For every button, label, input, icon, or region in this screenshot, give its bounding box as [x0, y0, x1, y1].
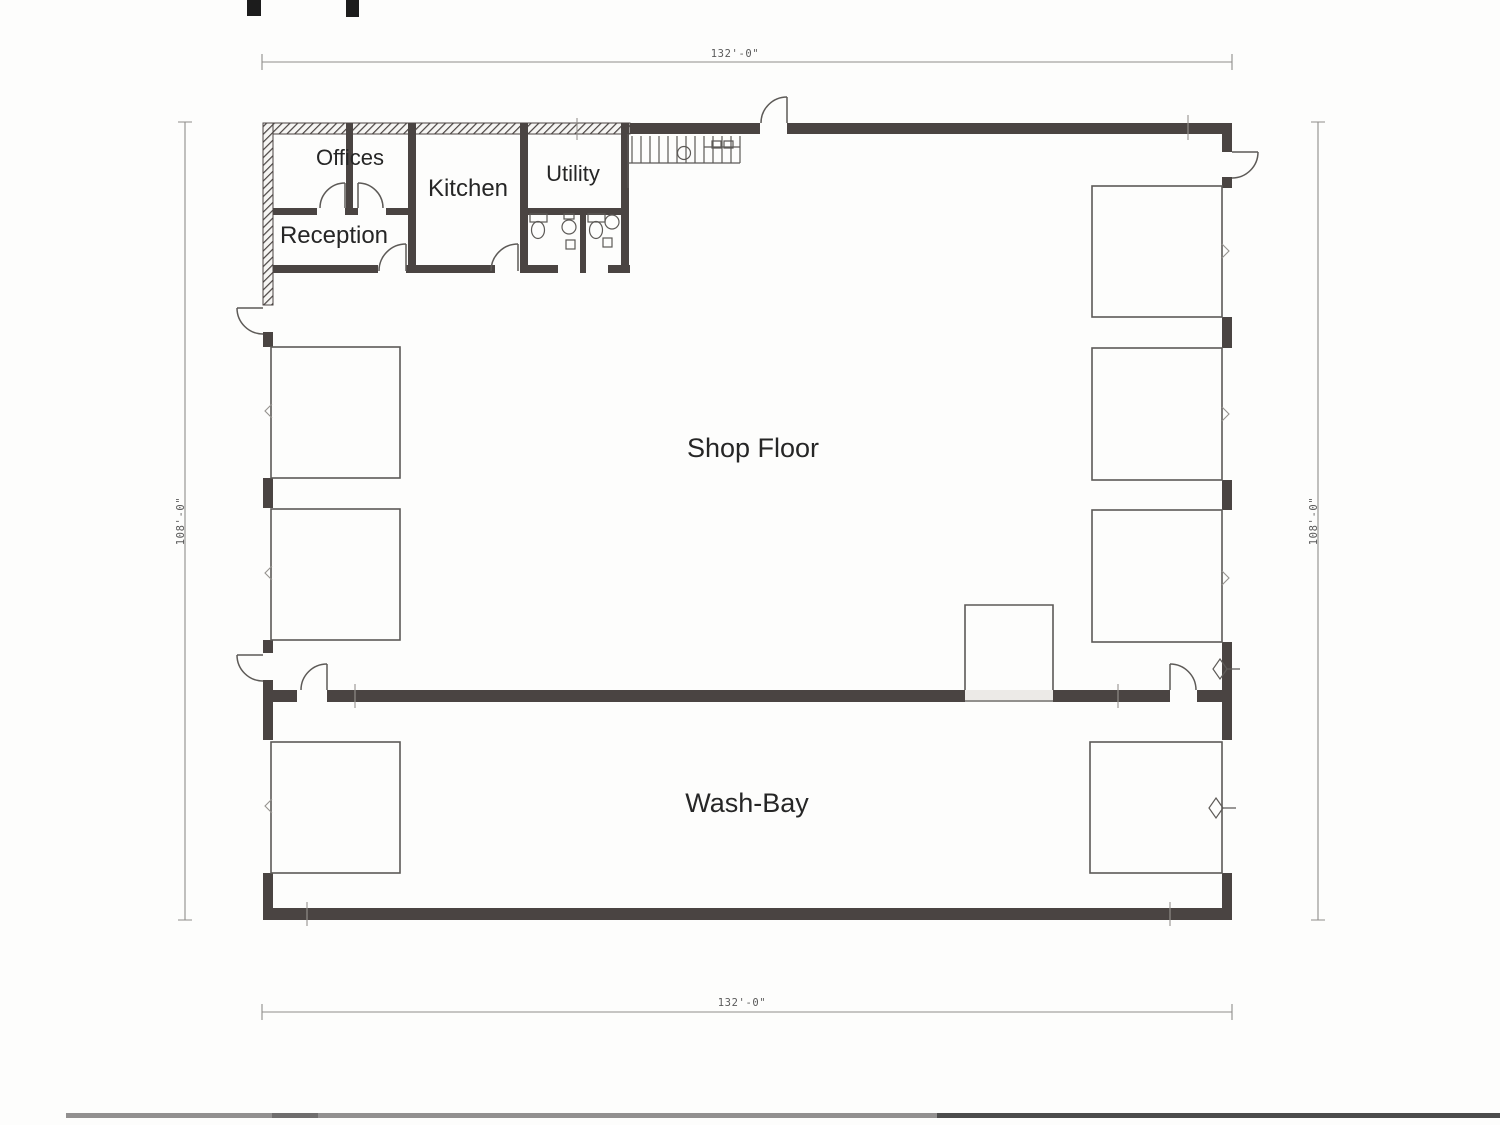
- stair-symbol-circle: [678, 147, 691, 160]
- overhead-door-bays: [271, 186, 1222, 873]
- dimension-bottom: 132'-0": [262, 997, 1232, 1020]
- floor-drain: [566, 240, 575, 249]
- right-wall: [1222, 480, 1232, 510]
- bay-left-2: [271, 509, 400, 640]
- floor-plan-drawing: 132'-0" 132'-0" 108'-0" 108'-0": [0, 0, 1500, 1125]
- dimension-top: 132'-0": [262, 48, 1232, 70]
- toilet: [588, 214, 605, 239]
- left-wall: [263, 332, 273, 347]
- office-right-door: [358, 183, 383, 208]
- left-wall: [263, 640, 273, 653]
- kitchen-east-wall: [520, 123, 528, 273]
- top-wall-exterior-door: [761, 97, 787, 123]
- dimension-right: 108'-0": [1308, 122, 1325, 920]
- offices-reception-wall: [386, 208, 410, 215]
- office-south-wall: [406, 265, 495, 273]
- left-wall: [263, 478, 273, 508]
- bay-right-1: [1092, 186, 1222, 317]
- bay-right-2: [1092, 348, 1222, 480]
- scan-mark: [247, 0, 261, 16]
- chevron-markers-right: [1222, 244, 1229, 585]
- scan-bar-left: [66, 1113, 937, 1118]
- scan-bar-right: [937, 1113, 1500, 1118]
- scan-artifacts-bottom: [66, 1113, 1500, 1118]
- left-wall-hatched: [263, 123, 273, 305]
- sink: [562, 214, 576, 234]
- top-wall: [787, 123, 1232, 134]
- bay-left-washbay: [271, 742, 400, 873]
- office-south-wall: [273, 265, 378, 273]
- label-shop-floor: Shop Floor: [687, 433, 819, 463]
- bay-left-1: [271, 347, 400, 478]
- scan-artifacts-top: [247, 0, 359, 17]
- bay-right-washbay: [1090, 742, 1222, 873]
- right-wall-exterior-door: [1232, 152, 1258, 178]
- bay-right-3: [1092, 510, 1222, 642]
- label-offices: Offices: [316, 145, 384, 170]
- dividing-wall: [273, 690, 1232, 702]
- dimension-label-right: 108'-0": [1308, 497, 1320, 545]
- label-utility: Utility: [546, 161, 600, 186]
- sink: [603, 215, 619, 247]
- dividing-wall-door-left: [301, 664, 327, 690]
- scan-mark: [346, 0, 359, 17]
- dividing-wall-segment: [1053, 690, 1170, 702]
- right-wall: [1222, 317, 1232, 348]
- toilet: [530, 214, 547, 239]
- restroom-partition-wall: [580, 208, 586, 273]
- office-left-door: [320, 183, 345, 208]
- dividing-wall-segment: [273, 690, 297, 702]
- scan-bar-smudge: [272, 1113, 318, 1118]
- left-wall-exterior-door-upper: [237, 308, 263, 334]
- dimension-label-left: 108'-0": [175, 497, 187, 545]
- dividing-wall-door-right: [1170, 664, 1196, 690]
- dividing-wall-segment: [327, 690, 965, 702]
- label-wash-bay: Wash-Bay: [685, 788, 809, 818]
- floor-drain: [603, 238, 612, 247]
- label-kitchen: Kitchen: [428, 175, 508, 202]
- dimension-label-top: 132'-0": [711, 48, 759, 60]
- dividing-wall-segment: [1197, 690, 1232, 702]
- top-wall: [630, 123, 760, 134]
- kitchen-door: [491, 244, 518, 271]
- restroom-fixtures: [530, 214, 619, 249]
- label-reception: Reception: [280, 222, 388, 249]
- stairs: [628, 134, 740, 188]
- left-wall: [263, 680, 273, 740]
- left-wall-exterior-door-lower: [237, 655, 263, 681]
- vestibule-room: [965, 605, 1053, 690]
- right-wall: [1222, 123, 1232, 152]
- right-wall: [1222, 177, 1232, 188]
- kitchen-west-wall: [408, 123, 416, 273]
- bottom-wall: [263, 908, 1232, 920]
- room-labels: Offices Reception Kitchen Utility Shop F…: [280, 145, 819, 818]
- floor-plan-page: 132'-0" 132'-0" 108'-0" 108'-0": [0, 0, 1500, 1125]
- dividing-wall-opening: [965, 690, 1053, 702]
- dimension-left: 108'-0": [175, 122, 192, 920]
- dimension-label-bottom: 132'-0": [718, 997, 766, 1009]
- offices-reception-wall: [273, 208, 317, 215]
- top-wall-hatched: [263, 123, 630, 134]
